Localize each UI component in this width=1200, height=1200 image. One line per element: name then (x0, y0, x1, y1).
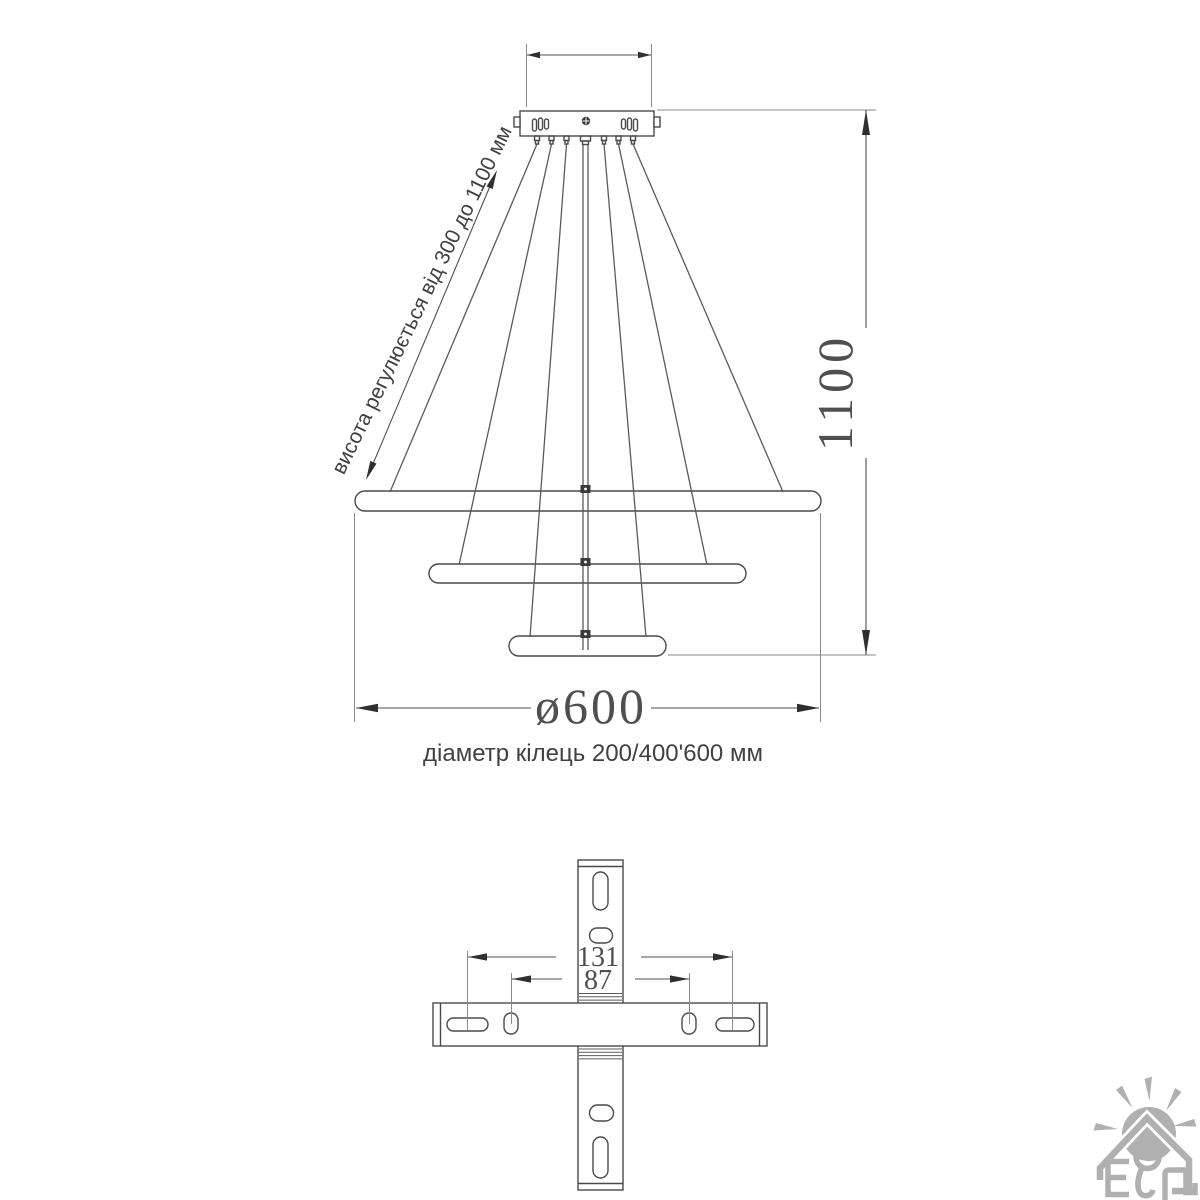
ceiling-canopy (514, 111, 660, 145)
cable-grips (535, 136, 636, 145)
bracket-horizontal-bar (433, 1003, 767, 1046)
logo-letter-e (1108, 1162, 1129, 1195)
canopy-screw (582, 117, 590, 125)
canopy-width-dimension (527, 44, 652, 107)
diameter-dimension-value: ø600 (535, 678, 647, 734)
technical-drawing: 1100 ø600 діаметр кілець 200/400'600 мм … (0, 0, 1200, 1200)
height-adjust-note: висота регулюється від 300 до 1100 мм (328, 122, 517, 480)
logo-bulb-tail (1138, 1167, 1153, 1196)
height-dimension-value: 1100 (807, 333, 863, 451)
drawing-page: 1100 ø600 діаметр кілець 200/400'600 мм … (0, 0, 1200, 1200)
mounting-bracket-view: 131 87 (433, 860, 767, 1190)
brand-logo (1094, 1077, 1197, 1200)
canopy-right-tab (654, 117, 660, 127)
height-adjust-note-text: висота регулюється від 300 до 1100 мм (328, 122, 517, 477)
canopy-left-tab (514, 117, 520, 127)
cable-small-right (604, 144, 646, 637)
rings-caption: діаметр кілець 200/400'600 мм (423, 740, 763, 767)
bracket-inner-dimension-value: 87 (584, 965, 612, 996)
